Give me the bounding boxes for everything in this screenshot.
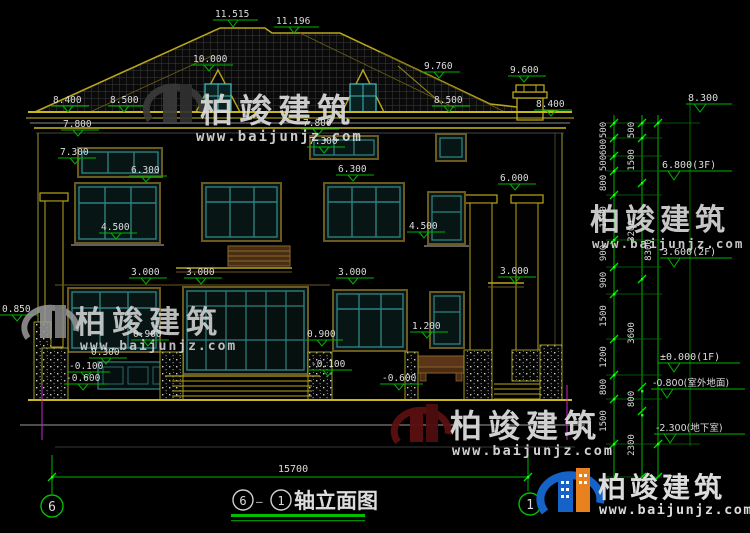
svg-text:柏竣建筑: 柏竣建筑 — [450, 407, 602, 445]
svg-text:11.196: 11.196 — [276, 16, 311, 27]
svg-text:柏竣建筑: 柏竣建筑 — [75, 305, 223, 341]
svg-text:-0.600: -0.600 — [382, 373, 417, 384]
window-3f-small — [436, 134, 466, 161]
svg-text:10.000: 10.000 — [193, 54, 228, 65]
svg-text:1: 1 — [526, 498, 534, 513]
svg-text:500: 500 — [599, 122, 609, 138]
window-1f-small-right — [430, 292, 464, 348]
svg-text:4.500: 4.500 — [409, 221, 438, 232]
svg-text:www.baijunjz.com: www.baijunjz.com — [599, 502, 750, 518]
svg-text:轴立面图: 轴立面图 — [294, 489, 378, 513]
svg-text:11.515: 11.515 — [215, 9, 249, 20]
svg-text:-0.100: -0.100 — [311, 359, 346, 370]
garden-bench — [415, 356, 467, 381]
svg-text:8.400: 8.400 — [536, 99, 565, 110]
window-2f-mid-right — [324, 183, 404, 241]
svg-text:1.200: 1.200 — [412, 321, 441, 332]
svg-text:1500: 1500 — [599, 305, 609, 327]
svg-text:-0.100: -0.100 — [69, 361, 104, 372]
balcony-ledges — [55, 268, 524, 287]
bottom-dimension: 15700 — [48, 455, 532, 494]
svg-text:0.850: 0.850 — [2, 304, 31, 315]
window-2f-small-right — [424, 192, 469, 246]
drawing-title: 6 — 1 轴立面图 — [231, 489, 378, 521]
svg-text:7.300: 7.300 — [60, 147, 89, 158]
svg-text:6.800(3F): 6.800(3F) — [662, 160, 716, 171]
svg-text:1200: 1200 — [599, 346, 609, 368]
svg-text:800: 800 — [627, 391, 637, 407]
entrance-steps — [165, 376, 320, 396]
svg-text:柏竣建筑: 柏竣建筑 — [590, 203, 730, 238]
svg-text:6.300: 6.300 — [338, 164, 367, 175]
svg-text:6.000: 6.000 — [500, 173, 529, 184]
cad-elevation-drawing: 11.515 11.196 10.000 9.760 9.600 8.400 8… — [0, 0, 750, 533]
svg-text:3600: 3600 — [627, 322, 637, 344]
brand-logo: 柏竣建筑 www.baijunjz.com — [540, 468, 750, 518]
svg-text:3.000: 3.000 — [338, 267, 367, 278]
svg-text:7.800: 7.800 — [63, 119, 92, 130]
elevation-canvas: 11.515 11.196 10.000 9.760 9.600 8.400 8… — [0, 0, 750, 533]
svg-text:6: 6 — [48, 500, 56, 515]
svg-text:6.300: 6.300 — [131, 165, 160, 176]
svg-text:±0.000(1F): ±0.000(1F) — [660, 352, 720, 363]
svg-text:2300: 2300 — [627, 434, 637, 456]
svg-text:www.baijunjz.com: www.baijunjz.com — [80, 339, 237, 354]
pilaster-right-1 — [465, 195, 497, 350]
watermark-right-middle: 柏竣建筑 www.baijunjz.com — [590, 203, 744, 251]
awning-2f — [228, 246, 290, 266]
svg-text:800: 800 — [599, 175, 609, 191]
svg-text:8.400: 8.400 — [53, 95, 82, 106]
svg-text:柏竣建筑: 柏竣建筑 — [200, 91, 356, 130]
window-2f-mid-left — [202, 183, 281, 241]
svg-text:1: 1 — [277, 494, 284, 508]
right-dimension-chains: 500 600 500 800 1500 900 900 1500 1200 8… — [599, 93, 745, 481]
svg-text:900: 900 — [599, 272, 609, 288]
svg-text:-0.800(室外地面): -0.800(室外地面) — [653, 377, 729, 389]
svg-text:800: 800 — [599, 379, 609, 395]
svg-text:4.500: 4.500 — [101, 222, 130, 233]
svg-text:1500: 1500 — [627, 149, 637, 171]
svg-text:500: 500 — [599, 155, 609, 171]
svg-text:500: 500 — [627, 122, 637, 138]
svg-text:3.000: 3.000 — [186, 267, 215, 278]
watermark-center-bottom: 柏竣建筑 www.baijunjz.com — [394, 404, 614, 459]
svg-text:—: — — [256, 495, 263, 508]
window-1f-right — [333, 290, 407, 351]
svg-text:www.baijunjz.com: www.baijunjz.com — [452, 443, 614, 459]
svg-text:0.900: 0.900 — [307, 329, 336, 340]
svg-text:柏竣建筑: 柏竣建筑 — [598, 471, 726, 504]
svg-text:600: 600 — [599, 139, 609, 155]
window-2f-left — [71, 183, 164, 245]
svg-text:8.300: 8.300 — [688, 93, 718, 104]
svg-text:15700: 15700 — [278, 464, 308, 475]
svg-text:8.500: 8.500 — [110, 95, 139, 106]
svg-text:8.500: 8.500 — [434, 95, 463, 106]
svg-text:9.600: 9.600 — [510, 65, 539, 76]
svg-text:6: 6 — [239, 494, 246, 508]
axis-bubble-left: 6 — [41, 495, 63, 517]
svg-text:www.baijunjz.com: www.baijunjz.com — [592, 236, 744, 251]
svg-text:www.baijunjz.com: www.baijunjz.com — [196, 129, 363, 145]
side-steps — [494, 384, 540, 399]
svg-text:3.000: 3.000 — [131, 267, 160, 278]
svg-text:-2.300(地下室): -2.300(地下室) — [656, 422, 723, 434]
svg-text:9.760: 9.760 — [424, 61, 453, 72]
svg-text:3.000: 3.000 — [500, 266, 529, 277]
svg-text:-0.600: -0.600 — [66, 373, 101, 384]
